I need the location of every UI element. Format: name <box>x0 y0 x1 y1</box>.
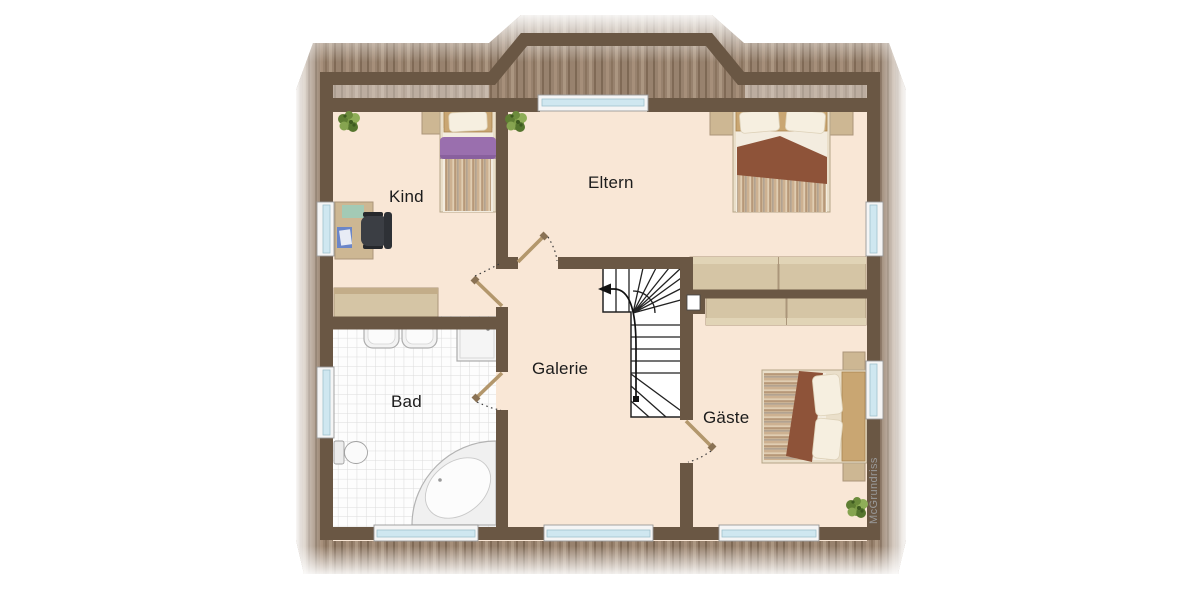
pillow <box>739 109 780 133</box>
pillow <box>812 374 843 417</box>
window-eltern-right <box>866 202 883 256</box>
room-label-galerie: Galerie <box>532 360 588 377</box>
window-gaeste-bottom <box>719 525 819 541</box>
window-gaeste-right <box>866 361 883 419</box>
pillow <box>785 109 826 133</box>
nightstand <box>829 109 853 135</box>
sideboard <box>334 288 438 317</box>
guest-double-bed <box>762 370 867 463</box>
floor-plan-drawing <box>0 0 1200 600</box>
floor-plan: Kind Eltern Bad Galerie Gäste McGrundris… <box>0 0 1200 600</box>
wardrobe-gaeste <box>706 297 866 325</box>
desk-pad <box>342 205 364 218</box>
dormer-window <box>538 95 648 111</box>
pillow <box>812 418 843 461</box>
nightstand <box>843 463 865 481</box>
window-bad-left <box>317 367 334 438</box>
single-bed <box>440 107 496 212</box>
window-bad-bottom <box>374 525 478 541</box>
window-galerie-bottom <box>544 525 653 541</box>
chimney-shaft <box>683 291 705 314</box>
office-chair <box>361 212 392 249</box>
room-label-kind: Kind <box>389 188 424 205</box>
nightstand <box>843 352 865 370</box>
toilet <box>334 441 368 464</box>
room-label-eltern: Eltern <box>588 174 634 191</box>
nightstand <box>710 109 734 135</box>
wardrobe-eltern <box>690 257 866 290</box>
eave-strip-right <box>745 85 867 98</box>
room-label-bad: Bad <box>391 393 422 410</box>
room-label-gaeste: Gäste <box>703 409 749 426</box>
window-kind-left <box>317 202 334 256</box>
watermark: McGrundriss <box>869 457 880 524</box>
double-bed <box>733 106 830 212</box>
eave-strip-left <box>333 85 489 98</box>
pillow <box>449 111 488 132</box>
headboard <box>842 372 865 461</box>
nightstand <box>422 110 442 134</box>
